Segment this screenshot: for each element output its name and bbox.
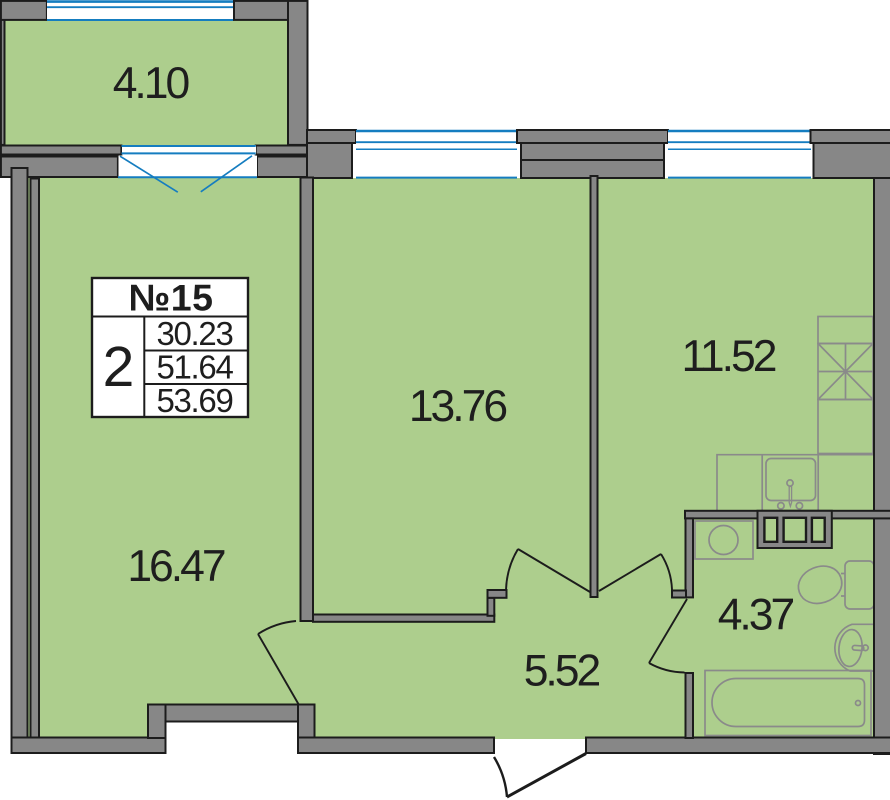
svg-text:13.76: 13.76 bbox=[409, 382, 507, 431]
svg-text:16.47: 16.47 bbox=[127, 542, 225, 591]
svg-text:№15: №15 bbox=[128, 277, 213, 319]
svg-text:51.64: 51.64 bbox=[156, 349, 233, 386]
svg-text:11.52: 11.52 bbox=[681, 332, 775, 381]
svg-text:4.37: 4.37 bbox=[718, 591, 794, 640]
svg-text:2: 2 bbox=[103, 335, 135, 399]
svg-text:30.23: 30.23 bbox=[156, 315, 232, 352]
svg-text:4.10: 4.10 bbox=[113, 59, 190, 108]
svg-text:5.52: 5.52 bbox=[524, 647, 600, 696]
svg-text:53.69: 53.69 bbox=[156, 382, 232, 419]
